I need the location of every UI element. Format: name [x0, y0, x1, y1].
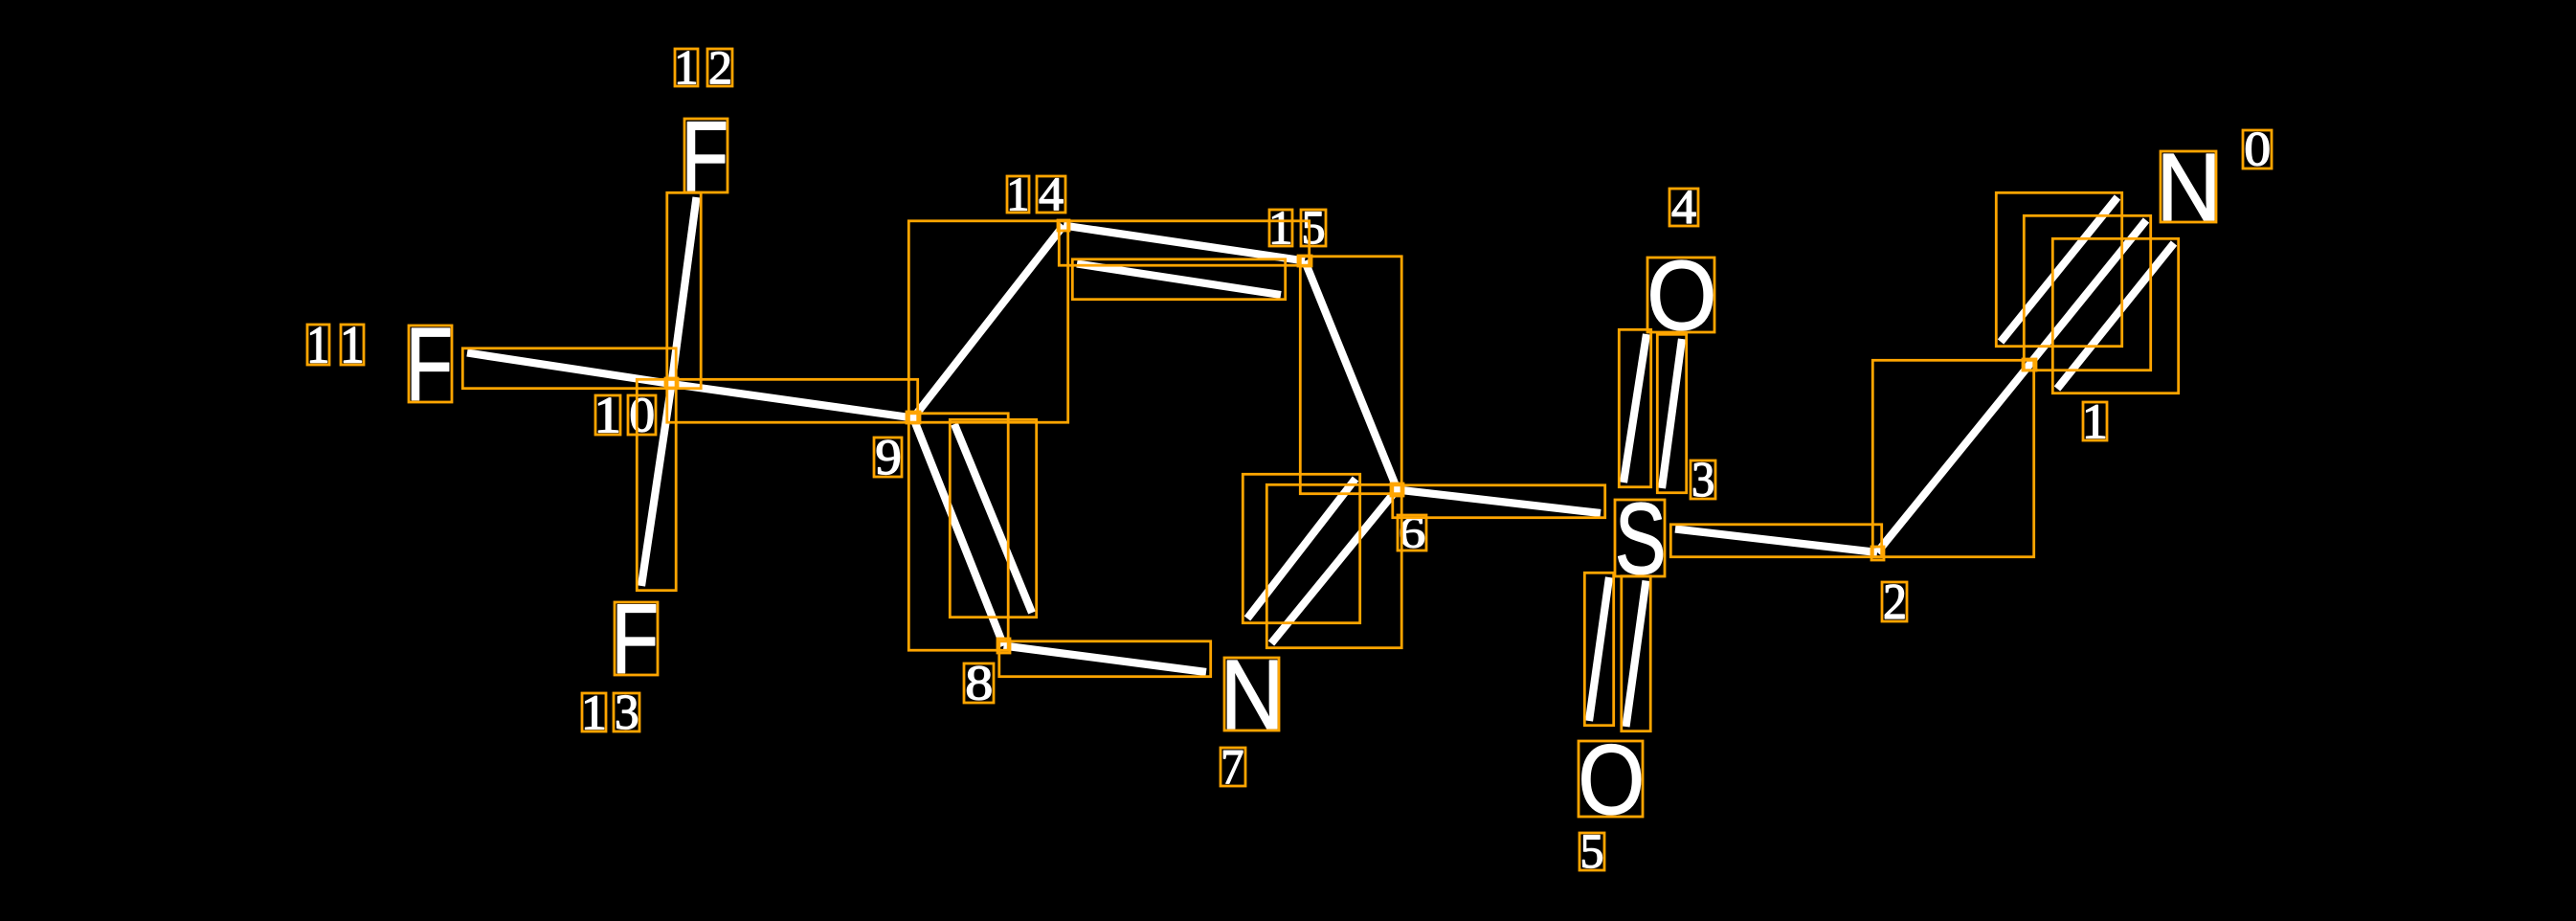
svg-text:F: F — [682, 100, 729, 212]
svg-text:N: N — [1221, 639, 1285, 750]
svg-text:N: N — [2156, 134, 2221, 241]
svg-text:F: F — [612, 584, 660, 694]
